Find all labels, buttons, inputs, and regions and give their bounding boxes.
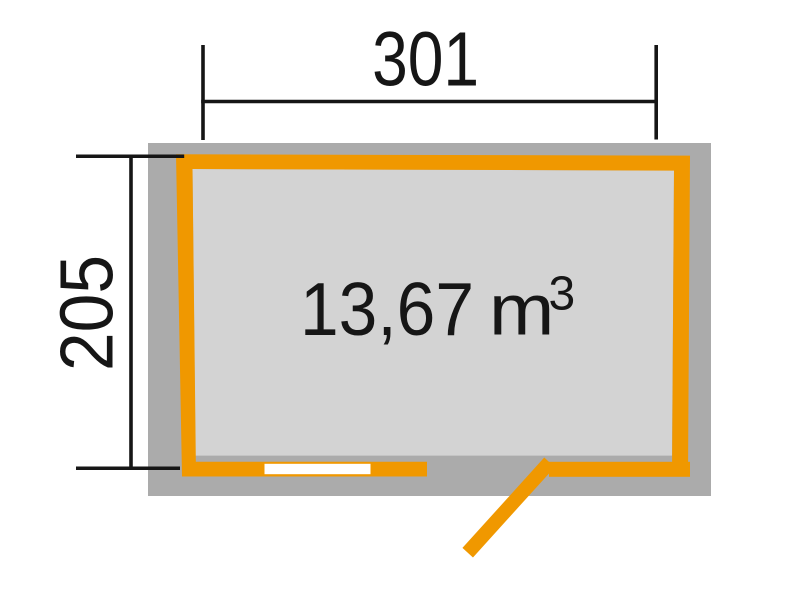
svg-text:205: 205 — [45, 255, 129, 371]
svg-text:3: 3 — [549, 268, 576, 321]
svg-text:13,67: 13,67 — [300, 267, 474, 351]
svg-text:301: 301 — [372, 17, 479, 103]
svg-text:m: m — [489, 269, 554, 349]
